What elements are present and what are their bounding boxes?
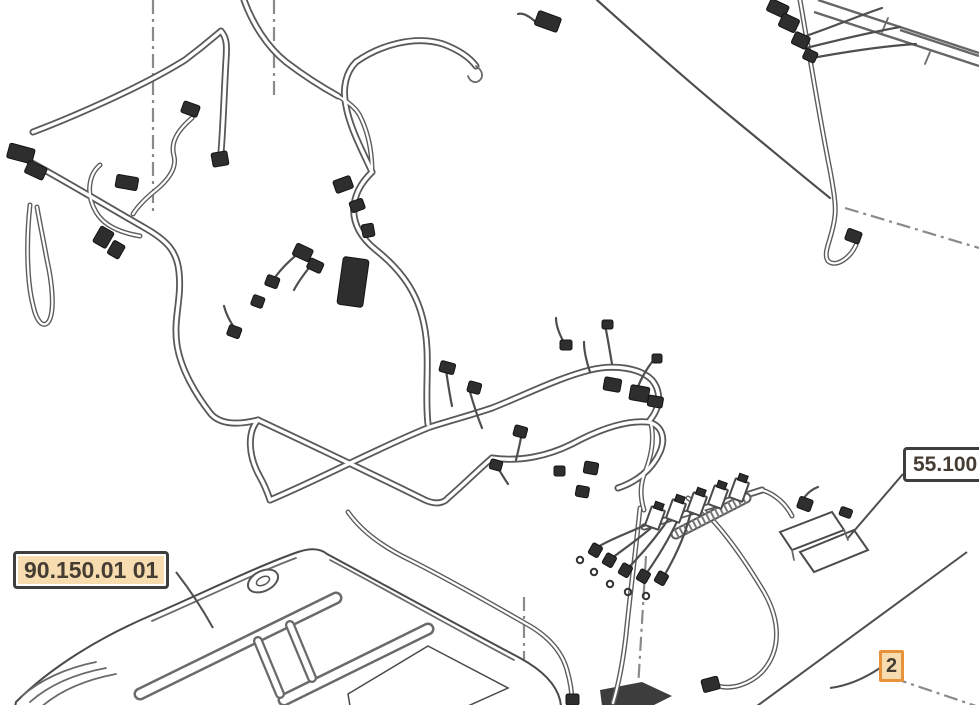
part-ref-text: 55.100 xyxy=(913,453,977,476)
frame-beam xyxy=(814,0,979,66)
item-number-text: 2 xyxy=(886,655,897,677)
bottom-bracket xyxy=(600,682,672,705)
harness-illustration xyxy=(0,0,979,705)
item-number-label-2[interactable]: 2 xyxy=(879,650,904,682)
relay-block xyxy=(780,496,868,572)
parts-diagram-page: 90.150.01 01 55.100 2 xyxy=(0,0,979,705)
connector-blobs xyxy=(6,0,862,705)
part-ref-label-55-100[interactable]: 55.100 xyxy=(903,447,979,482)
wire-harness xyxy=(28,0,916,703)
part-ref-label-90-150-01-01[interactable]: 90.150.01 01 xyxy=(13,551,169,589)
part-ref-text: 90.150.01 01 xyxy=(18,556,164,584)
panel-edge-line xyxy=(757,552,967,705)
